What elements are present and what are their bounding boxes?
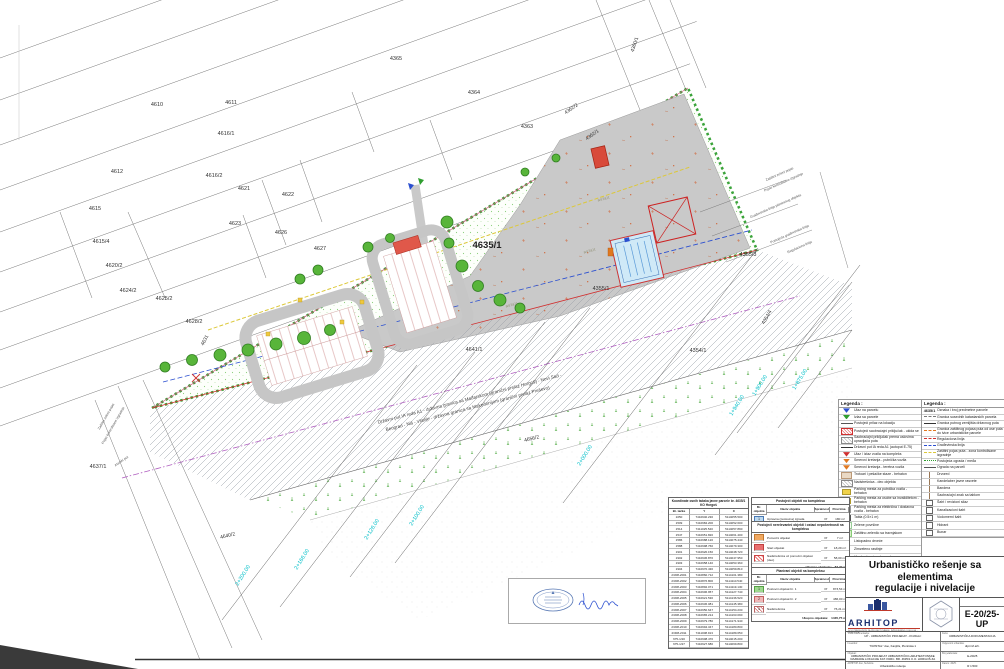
- legend-item: Trotoari i pešačke staze - behaton: [839, 472, 921, 480]
- orange-cabinet: [608, 248, 613, 256]
- legend-item-label: Granica putnog zemljišta državnog puta: [937, 422, 1004, 426]
- legend-item-label: Trotoari i pešačke staze - behaton: [854, 473, 921, 477]
- legend-symbol: [922, 466, 937, 470]
- title-block-row: ARHITOP doo, Subotica Urbanističko rešen…: [846, 662, 1004, 669]
- legend-item: Zelene površine: [839, 522, 921, 530]
- title-block-grid: Vrsta dokumentacije: UP - URBANISTIČKI P…: [846, 631, 1004, 669]
- legend-symbol: [922, 507, 937, 514]
- parcel-label: 4627: [314, 246, 326, 252]
- legend-symbol: [922, 438, 937, 442]
- parcel-label: 4623: [229, 221, 241, 227]
- parcel-label: 4621: [238, 186, 250, 192]
- legend-item: Ograda na parceli: [922, 465, 1004, 472]
- legend-item: Zaštitno zelenilo sa travnjakom: [839, 530, 921, 538]
- firm-name: ARHITOP: [848, 618, 920, 628]
- parcel-label: 4362/2: [563, 102, 579, 116]
- legend-symbol: [922, 472, 937, 478]
- legend-item-label: Izlaz sa parcele: [854, 416, 921, 420]
- table-title: Planirani objekti na kompleksu: [752, 568, 849, 575]
- parcel-label: 4355/3: [740, 252, 757, 258]
- legend-panel-right: Legenda : 4635/1 Oznaka i broj predmetne…: [921, 399, 1004, 538]
- legend-item: Kanalizacioni šaht: [922, 507, 1004, 515]
- parcel-label: 4616/2: [206, 173, 223, 179]
- legend-item-label: Šaht / revizioni silaz: [937, 501, 1004, 505]
- legend-item-label: Oznaka i broj predmetne parcele: [937, 409, 1004, 413]
- legend-symbol: [922, 486, 937, 492]
- legend-symbol: [922, 460, 937, 464]
- legend-symbol: [839, 472, 854, 479]
- legend-item-label: Državni put IA reda A1 (autoput E-75): [854, 446, 921, 450]
- legend-symbol: [839, 452, 854, 457]
- table-total: Ukupno objekata:1435,75 m²: [752, 615, 849, 621]
- parcel-label: 4363: [521, 124, 533, 130]
- parcel-label: 4615: [89, 206, 101, 212]
- legend-item-label: Hidrant: [937, 524, 1004, 528]
- legend-symbol: [839, 415, 854, 420]
- annotation: Pojas kontrolisane izgradnje: [101, 406, 126, 445]
- legend-title: Legenda :: [922, 400, 1004, 408]
- legend-item: Zaštitni pojas puta - zona kontrolisane …: [922, 450, 1004, 459]
- legend-symbol: [922, 479, 937, 485]
- legend-item-label: Granica susednih katastarskih parcela: [937, 416, 1004, 420]
- legend-item: Smerovi kretanja - teretna vozila: [839, 465, 921, 472]
- legend-item-label: Postojeća ograda / međa: [937, 460, 1004, 464]
- legend-item-label: Nadstrešnica - deo objekta: [854, 481, 921, 485]
- parcel-label: 4641/1: [466, 347, 483, 353]
- coordinates-table-title: Koordinate osnih tačaka javne parcele br…: [669, 498, 748, 509]
- table-row: 3 Nadstrešnica Pr 76,21 m²: [752, 605, 849, 615]
- parcel-label: 4637/1: [90, 464, 107, 470]
- legend-item: Listopadno drveće: [839, 538, 921, 546]
- legend-item: Kandelaber javne rasvete: [922, 479, 1004, 486]
- exit-arrow-green: [418, 178, 424, 185]
- legend-item: Bunar: [922, 530, 1004, 538]
- table-body: Pomoćni objekat Pr 7 m² Stari objekat Pr…: [752, 533, 849, 564]
- legend-symbol: [922, 522, 937, 529]
- annotation: Građevinska linija planiranog objekta: [749, 193, 801, 219]
- legend-item: Tabla (0.5×1 m): [839, 515, 921, 523]
- table-row: 2 Poslovni objekat br. 2 Pr 486,00 m²: [752, 595, 849, 605]
- legend-symbol: [922, 430, 937, 434]
- legend-item-label: Smerovi kretanja - teretna vozila: [854, 466, 921, 470]
- firm-logo: ARHITOP DOO PREDUZEĆE ZA PROJEKTOVANJE, …: [846, 598, 923, 631]
- station-label: 2+200.00: [235, 564, 252, 587]
- legend-item-label: Vodomerni šaht: [937, 516, 1004, 520]
- legend-item: Zimzeleno rastinje: [839, 546, 921, 554]
- hex-stamp-cell: [923, 598, 960, 631]
- legend-item-label: Ulaz / izlaz vozila na kompleks: [854, 453, 921, 457]
- legend-symbol: [839, 408, 854, 413]
- legend-symbol: [922, 500, 937, 507]
- drawing-number-cell: E-20/25-UP: [960, 598, 1004, 631]
- legend-symbol: [922, 530, 937, 537]
- legend-item: Državni put IA reda A1 (autoput E-75): [839, 445, 921, 452]
- annotation: Postojeća građevinska linija: [770, 224, 810, 245]
- legend-symbol: [839, 428, 854, 436]
- table-row: Nadstrešnica uz pomoćni objekat (deo) Pr…: [752, 553, 849, 564]
- legend-item: Ulaz na parcelu: [839, 408, 921, 415]
- legend-symbol: [922, 444, 937, 448]
- parcel-label: 4355/1: [593, 286, 610, 292]
- title-block-row: Objekat: URBANISTIČKI PROJEKAT URBANISTI…: [846, 652, 1004, 662]
- legend-item-label: Parking mesta za putnička vozila - behat…: [854, 488, 921, 496]
- legend-item-label: Parking mesta za električna i dostavna v…: [854, 506, 921, 514]
- legend-symbol: [922, 515, 937, 522]
- round-seal-and-signature: [509, 579, 645, 623]
- legend-item: Parking mesta za električna i dostavna v…: [839, 506, 921, 515]
- legend-item: Saobraćajni znak sa tablom: [922, 493, 1004, 500]
- legend-item: Saobraćajni priključak prema uslovima up…: [839, 436, 921, 445]
- legend-item-label: Zimzeleno rastinje: [854, 548, 921, 552]
- legend-title: Legenda :: [839, 400, 921, 408]
- legend-item-label: Bandera: [937, 487, 1004, 491]
- legend-item-label: Listopadno drveće: [854, 540, 921, 544]
- title-block-cell: Broj elaborata: E-20/25: [941, 652, 1004, 661]
- legend-item-label: Zaštitni pojas puta - zona kontrolisane …: [937, 450, 1004, 458]
- station-label: 2+166.00: [294, 548, 311, 571]
- parcel-label: 4626: [275, 230, 287, 236]
- parcel-label: 4640/2: [220, 531, 237, 541]
- legend-symbol: [922, 422, 937, 426]
- parcel-label: 4631: [200, 334, 211, 347]
- drawing-sheet: 4365 4364 4363 4362/2 4362/1 4360/1 4610…: [0, 0, 1004, 669]
- legend-item-label: Građevinska linija: [937, 444, 1004, 448]
- annotation: Pojas kontrolisane izgradnje: [763, 172, 803, 193]
- legend-symbol: [922, 493, 937, 499]
- legend-item-label: Bunar: [937, 531, 1004, 535]
- legend-item-label: Regulaciona linija: [937, 438, 1004, 442]
- parcel-label: 4610: [151, 102, 163, 108]
- legend-item: Bandera: [922, 486, 1004, 493]
- legend-item-label: Ograda na parceli: [937, 466, 1004, 470]
- legend-item-label: Kanalizacioni šaht: [937, 509, 1004, 513]
- table-header: Br. objekta Naziv objekta Spratnost Povr…: [752, 505, 849, 515]
- legend-symbol: [922, 452, 937, 456]
- parcel-label: 4628/2: [186, 319, 203, 325]
- parcel-label: 4611: [225, 100, 237, 106]
- legend-item-label: Parking mesta za osobe sa invaliditetom …: [854, 497, 921, 505]
- parcel-label: 4360/1: [630, 36, 640, 53]
- drawing-number: E-20/25-UP: [960, 607, 1004, 631]
- site-parcel-label: 4635/1: [472, 240, 502, 251]
- planned-objects-table: Planirani objekti na kompleksu Br. objek…: [751, 567, 850, 622]
- title-block-cell: ARHITOP doo, Subotica Urbanističko rešen…: [846, 662, 941, 669]
- title-block-cell: Datum: 2025. R 1:500: [941, 662, 1004, 669]
- legend-panel-left: Legenda : Ulaz na parcelu Izlaz sa parce…: [838, 399, 922, 570]
- table-row: Pomoćni objekat Pr 7 m²: [752, 533, 849, 543]
- firm-subtitle: DOO PREDUZEĆE ZA PROJEKTOVANJE, INŽENJER…: [848, 628, 920, 634]
- title-block: Urbanističko rešenje sa elementima regul…: [845, 556, 1004, 669]
- table-title: Postojeći nerelevantni objekti i ostaci …: [752, 522, 849, 533]
- closed-access-x: [192, 374, 200, 382]
- legend-item: Vodomerni šaht: [922, 515, 1004, 523]
- legend-item-label: Saobraćajni znak sa tablom: [937, 494, 1004, 498]
- legend-symbol: [839, 446, 854, 450]
- legend-symbol: [839, 489, 854, 496]
- table-header: Br. objekta Naziv objekta Spratnost Povr…: [752, 575, 849, 585]
- legend-symbol: [839, 459, 854, 464]
- verification-stamp-box: [508, 578, 646, 624]
- legend-symbol: [839, 437, 854, 445]
- legend-item: 4635/1 Oznaka i broj predmetne parcele: [922, 408, 1004, 415]
- legend-item-label: Postojeći prilaz na lokaciju: [854, 422, 921, 426]
- empty-cell: [960, 598, 1004, 607]
- title-block-cell: Objekat: URBANISTIČKI PROJEKAT URBANISTI…: [846, 652, 941, 661]
- title-block-row: Investitor: "KRISTAL" doo, Kanjiža, Pion…: [846, 642, 1004, 652]
- legend-item: Hidrant: [922, 522, 1004, 530]
- coordinates-table: Koordinate osnih tačaka javne parcele br…: [668, 497, 749, 649]
- table-title: Postojeći objekti na kompleksu: [752, 498, 849, 505]
- parcel-label: 4616/1: [218, 131, 235, 137]
- legend-item-label: Zaštitno zelenilo sa travnjakom: [854, 532, 921, 536]
- legend-item-label: Postojeći saobraćajni priključak - ukida…: [854, 430, 921, 434]
- sheet-corner: [0, 645, 138, 669]
- table-body: 1 Poslovni objekat br. 1 Pr 873,54 m² 2 …: [752, 585, 849, 615]
- legend-item-label: Tabla (0.5×1 m): [854, 516, 921, 520]
- parcel-label: 4622: [282, 192, 294, 198]
- table-row: Stari objekat Pr 18,29 m²: [752, 543, 849, 553]
- parcel-label: 4624/2: [120, 288, 137, 294]
- title-block-cell: Odgovorni urbanista: dipl.inž.arh.: [941, 642, 1004, 651]
- license-stamp-icon: [928, 600, 954, 628]
- legend-parcel-symbol: 4635/1: [922, 409, 937, 413]
- table-row: 675-1/277410927.6805114069.800: [669, 642, 748, 648]
- parcel-label: 4354/1: [690, 348, 707, 354]
- legend-symbol: [839, 480, 854, 488]
- legend-item: Postojeći prilaz na lokaciju: [839, 421, 921, 428]
- legend-items: Ulaz na parcelu Izlaz sa parcele Postoje…: [839, 408, 921, 569]
- title-block-cell: Investitor: "KRISTAL" doo, Kanjiža, Pion…: [846, 642, 941, 651]
- title-block-logos: ARHITOP DOO PREDUZEĆE ZA PROJEKTOVANJE, …: [846, 597, 1004, 631]
- legend-item-label: Zelene površine: [854, 524, 921, 528]
- title-block-cell: Faza: URBANISTIČKA DOKUMENTACIJA: [941, 632, 1004, 641]
- legend-item: Šaht / revizioni silaz: [922, 500, 1004, 508]
- legend-item-label: Ulaz na parcelu: [854, 409, 921, 413]
- legend-item-label: Smerovi kretanja - putnička vozila: [854, 459, 921, 463]
- table-row: 1 Poslovni objekat br. 1 Pr 873,54 m²: [752, 585, 849, 595]
- legend-items: Granica susednih katastarskih parcela Gr…: [922, 415, 1004, 538]
- legend-item-label: Drvored: [937, 473, 1004, 477]
- legend-item: Granica zaštitnog pojasa puta od ose put…: [922, 428, 1004, 437]
- parcel-label: 4612: [111, 169, 123, 175]
- legend-item-label: Granica zaštitnog pojasa puta od ose put…: [937, 428, 1004, 436]
- legend-symbol: [839, 422, 854, 426]
- parcel-label: 4615/4: [93, 239, 110, 245]
- legend-symbol: [839, 465, 854, 470]
- arhitop-logo-icon: [848, 599, 918, 612]
- annotation: Regulaciona linija: [787, 240, 813, 255]
- legend-symbol: [922, 416, 937, 420]
- legend-item-label: Kandelaber javne rasvete: [937, 480, 1004, 484]
- legend-item-label: Saobraćajni priključak prema uslovima up…: [854, 436, 921, 444]
- parcel-label: 4625/2: [156, 296, 173, 302]
- coordinates-table-body: 10507410940.2305114055.500 15097410984.2…: [669, 515, 748, 648]
- legend-item: Drvored: [922, 472, 1004, 479]
- parcel-label: 4364: [468, 90, 480, 96]
- drawing-title: Urbanističko rešenje sa elementima regul…: [846, 557, 1004, 597]
- parcel-label: 4620/2: [106, 263, 123, 269]
- removed-objects-table: Postojeći nerelevantni objekti i ostaci …: [751, 521, 850, 571]
- parcel-label: 4365: [390, 56, 402, 62]
